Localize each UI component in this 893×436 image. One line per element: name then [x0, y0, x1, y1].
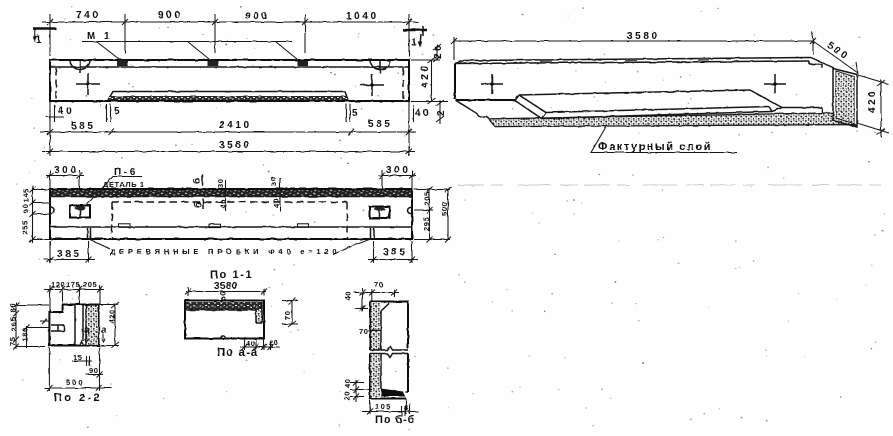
svg-text:205: 205: [83, 280, 97, 289]
svg-text:3580: 3580: [214, 281, 238, 292]
svg-text:900: 900: [245, 11, 270, 22]
svg-text:1040: 1040: [346, 11, 379, 22]
svg-text:70: 70: [359, 327, 369, 336]
svg-text:255: 255: [21, 220, 30, 234]
svg-text:а: а: [101, 325, 109, 336]
svg-text:1: 1: [411, 37, 419, 48]
svg-text:20: 20: [343, 391, 352, 401]
svg-text:500: 500: [66, 378, 85, 387]
svg-text:295: 295: [422, 217, 431, 231]
svg-text:120: 120: [51, 280, 65, 289]
svg-text:20: 20: [433, 43, 444, 59]
svg-text:500: 500: [440, 202, 449, 216]
svg-text:Фактурный слой: Фактурный слой: [598, 141, 712, 153]
svg-text:М: М: [87, 31, 98, 42]
svg-text:70: 70: [374, 280, 384, 289]
svg-text:ДЕРЕВЯННЫЕ ПРОБКИ Ф40 е=120: ДЕРЕВЯННЫЕ ПРОБКИ Ф40 е=120: [110, 247, 340, 256]
svg-text:80: 80: [9, 303, 18, 313]
svg-text:3580: 3580: [627, 31, 660, 42]
svg-text:740: 740: [76, 10, 101, 21]
svg-text:3580: 3580: [219, 140, 252, 151]
svg-text:2410: 2410: [219, 120, 252, 131]
svg-text:300: 300: [386, 165, 411, 176]
svg-text:70: 70: [283, 310, 292, 320]
svg-text:420: 420: [420, 64, 431, 89]
svg-text:900: 900: [158, 10, 183, 21]
svg-text:40: 40: [219, 199, 228, 209]
svg-text:1: 1: [104, 31, 112, 42]
svg-text:585: 585: [368, 119, 393, 130]
svg-text:385: 385: [57, 249, 82, 260]
svg-text:а: а: [84, 325, 92, 336]
svg-text:75: 75: [8, 336, 17, 346]
svg-text:420: 420: [867, 89, 878, 114]
svg-text:15: 15: [73, 353, 83, 362]
svg-text:145: 145: [22, 188, 31, 202]
svg-text:40: 40: [58, 106, 74, 117]
svg-text:б: б: [191, 175, 203, 184]
svg-text:30: 30: [269, 176, 278, 186]
svg-text:По 2-2: По 2-2: [54, 392, 102, 404]
svg-text:2: 2: [436, 108, 447, 116]
svg-text:40: 40: [343, 378, 352, 388]
svg-text:50: 50: [219, 291, 228, 301]
svg-text:585: 585: [71, 121, 96, 132]
svg-text:40: 40: [344, 291, 353, 301]
svg-text:20: 20: [269, 338, 279, 347]
svg-text:5: 5: [352, 108, 360, 119]
svg-text:265: 265: [9, 317, 18, 331]
svg-text:По а-а: По а-а: [217, 347, 258, 359]
svg-text:40: 40: [415, 108, 431, 119]
svg-text:300: 300: [54, 165, 79, 176]
svg-text:385: 385: [383, 247, 408, 258]
svg-text:4: 4: [404, 403, 409, 412]
svg-text:5: 5: [114, 106, 122, 117]
svg-text:ДЕТАЛЬ 1: ДЕТАЛЬ 1: [103, 180, 145, 189]
svg-text:30: 30: [216, 178, 225, 188]
svg-text:По б-б: По б-б: [375, 414, 415, 426]
svg-text:205: 205: [423, 191, 432, 205]
svg-text:180: 180: [21, 327, 30, 341]
svg-text:90: 90: [89, 366, 99, 375]
svg-text:40: 40: [272, 198, 281, 208]
svg-text:420: 420: [108, 309, 117, 323]
svg-text:б: б: [192, 199, 204, 208]
svg-text:По 1-1: По 1-1: [210, 269, 253, 281]
svg-text:90: 90: [21, 203, 30, 213]
svg-text:105: 105: [375, 402, 392, 411]
svg-text:175: 175: [66, 280, 80, 289]
svg-text:1: 1: [36, 35, 44, 46]
